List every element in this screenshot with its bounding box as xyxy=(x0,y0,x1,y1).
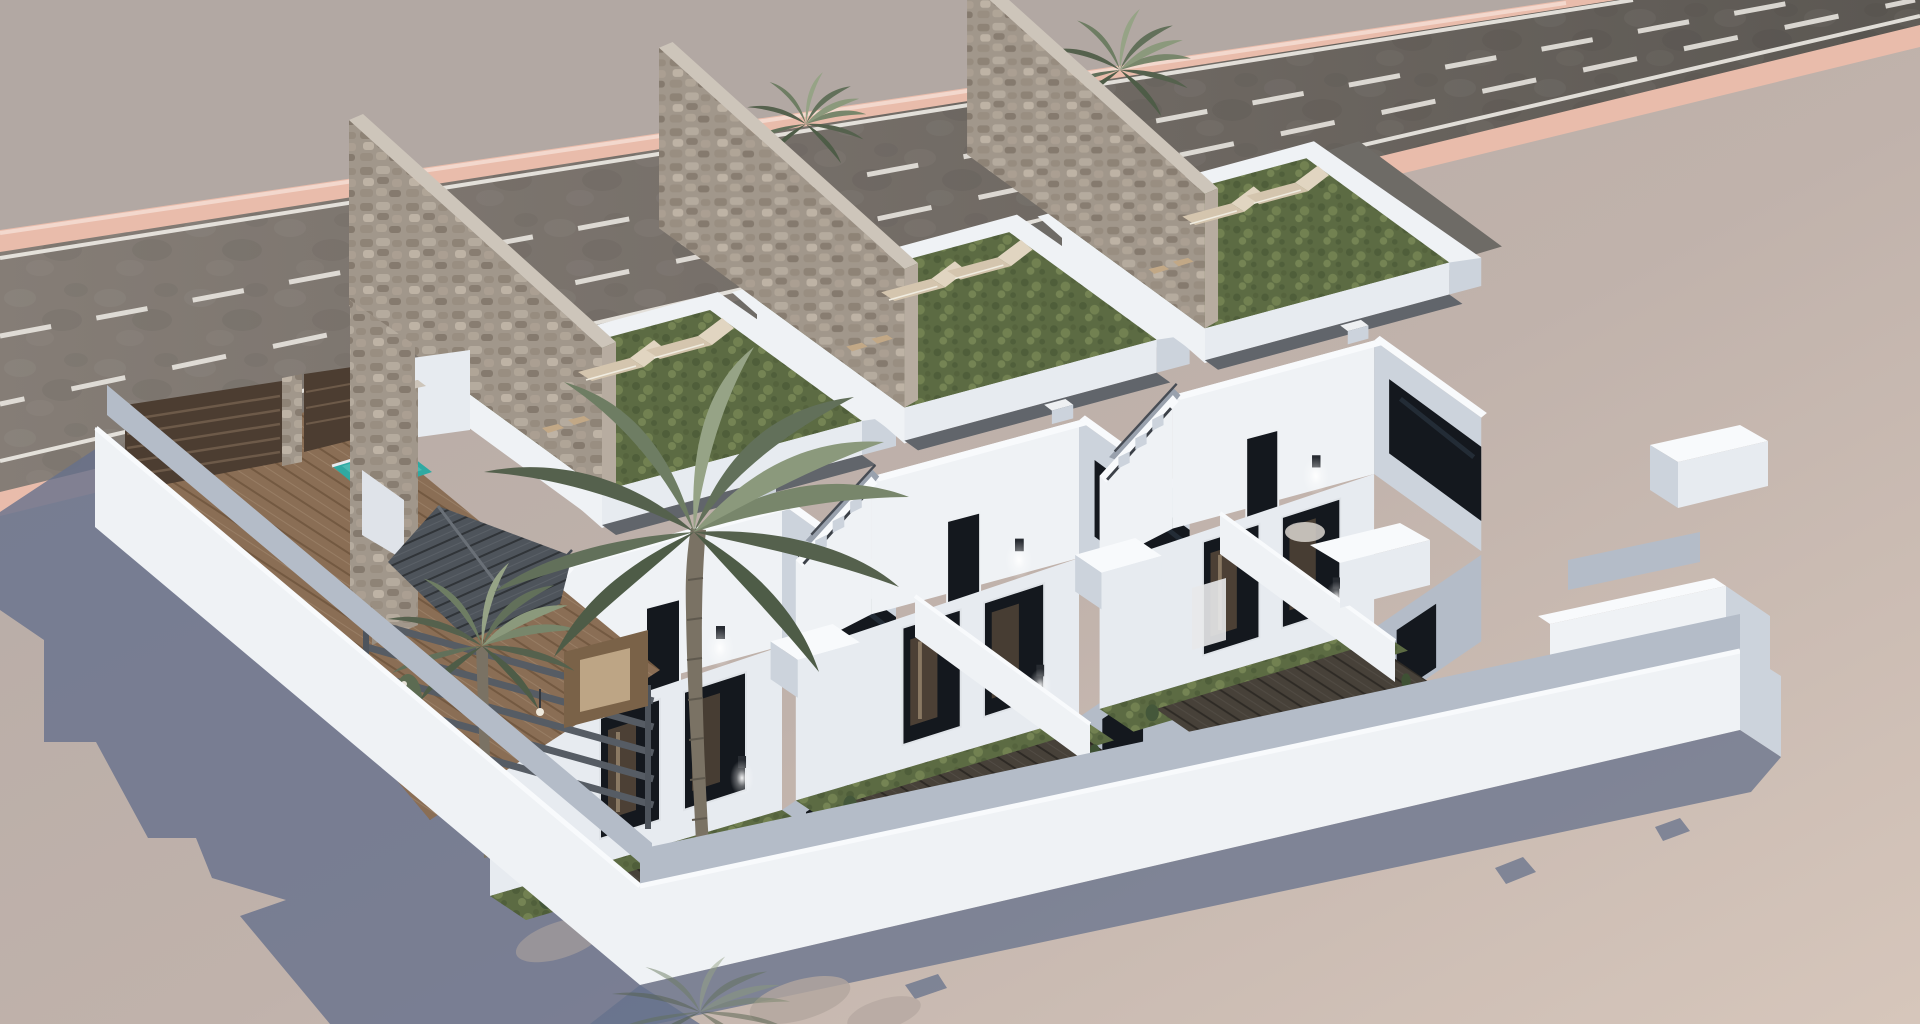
kitchen-cabinet-light xyxy=(580,648,630,712)
planter-box-face xyxy=(1678,441,1768,508)
front-wall-top-edge xyxy=(640,651,1740,886)
stone-wall-opening xyxy=(362,470,404,560)
pool-water xyxy=(332,446,432,494)
wood-deck-planks xyxy=(135,402,660,820)
villa-3-end-unit xyxy=(967,0,1502,782)
flowering-shrub xyxy=(394,674,450,790)
asphalt-road-texture xyxy=(0,0,1920,494)
lane-dashed-line xyxy=(0,0,1806,336)
gate-slat xyxy=(306,400,350,408)
gate-slat xyxy=(127,438,280,462)
tiled-canopy xyxy=(388,506,572,640)
villa-2-middle-unit xyxy=(659,42,1211,876)
palm-trunk xyxy=(476,646,494,858)
plant-shadow-bump xyxy=(1495,857,1536,884)
sunlight-gap-in-shadow xyxy=(843,989,924,1024)
pergola xyxy=(366,608,650,826)
perimeter-walls xyxy=(95,385,1781,985)
divider-wall-top xyxy=(915,596,1090,724)
canopy-slate-roof xyxy=(388,506,572,640)
near-pink-kerb xyxy=(0,25,1920,516)
sunlight-gap-in-shadow xyxy=(511,909,610,972)
background-palm xyxy=(747,72,866,163)
plant-shadow-bump xyxy=(1655,818,1690,841)
plant-shadow-bump xyxy=(905,974,947,999)
background-palm xyxy=(1051,9,1191,116)
pergola-beam xyxy=(370,622,650,700)
planter-box-face xyxy=(1340,540,1430,608)
plunge-pool xyxy=(332,446,432,494)
pergola-pendant-light xyxy=(536,708,544,716)
palm-shadow-silhouette xyxy=(612,957,791,1024)
parked-car xyxy=(700,224,770,256)
front-wall-end-cap xyxy=(1740,650,1781,757)
shrub-foliage xyxy=(426,746,450,790)
planter-box-top xyxy=(1650,425,1768,462)
courtyard-divider-wall xyxy=(1220,512,1395,682)
gate-leaf xyxy=(125,381,282,492)
canopy-ridge xyxy=(438,506,500,588)
end-planter-box xyxy=(1650,425,1768,508)
planter-box-side xyxy=(1650,445,1678,508)
end-wall-return xyxy=(1726,586,1770,694)
pergola-beam xyxy=(370,700,650,778)
villa-1-corner-unit xyxy=(349,114,918,974)
road-edge-line xyxy=(0,16,1920,461)
gate-slat xyxy=(306,384,350,392)
ground-beyond-road xyxy=(0,0,1566,230)
render-canvas xyxy=(0,0,1920,1024)
small-palm xyxy=(388,563,579,858)
planter-box-top xyxy=(1310,523,1430,563)
asphalt-road xyxy=(0,0,1920,494)
kitchen-appliance xyxy=(1192,578,1226,650)
corner-villa-extras xyxy=(125,300,909,865)
divider-wall-face xyxy=(915,595,1090,765)
end-wall-inner-face xyxy=(1568,532,1700,590)
pedestrian-gate xyxy=(304,367,352,452)
divider-planter-box xyxy=(1310,523,1430,608)
car-windshield xyxy=(714,231,752,247)
divider-wall-top xyxy=(1220,513,1395,641)
far-pink-kerb xyxy=(0,0,1618,254)
divider-wall-face xyxy=(1220,512,1395,682)
building-cast-shadow xyxy=(0,438,700,1024)
stone-column xyxy=(372,380,426,645)
stone-column-cap xyxy=(372,380,426,396)
pergola-beam xyxy=(370,648,650,726)
entry-side-wall xyxy=(354,350,470,446)
pool-water-light xyxy=(342,450,422,487)
courtyard-kitchen-view xyxy=(564,630,648,728)
road-edge-line xyxy=(0,0,1633,258)
gate-slat xyxy=(127,410,280,434)
gate-pillar-stone xyxy=(282,374,302,466)
lower-stone-wall xyxy=(350,300,415,620)
right-end-walls xyxy=(1538,532,1770,702)
car-body xyxy=(700,224,770,256)
end-wall-top xyxy=(1538,578,1726,624)
kitchen-doorway xyxy=(564,630,648,728)
pergola-beam xyxy=(370,726,650,804)
pool-coping xyxy=(332,446,398,466)
side-wall-outer-face xyxy=(95,427,640,985)
gate-slat xyxy=(127,424,280,448)
courtyard-divider-wall xyxy=(915,595,1090,765)
gate-slat xyxy=(306,416,350,424)
side-wall-top-edge xyxy=(96,428,640,886)
shrub-foliage xyxy=(394,674,422,726)
large-palm xyxy=(484,347,909,865)
shrub-bloom xyxy=(411,703,417,709)
shrub-bloom xyxy=(401,681,407,687)
palm-trunk-rings xyxy=(687,578,707,820)
stone-column-face xyxy=(372,380,418,645)
gate-slat xyxy=(127,452,280,476)
front-wall-shadow xyxy=(590,730,1781,1024)
front-wall-inner-face xyxy=(640,614,1740,885)
canopy-tile-texture xyxy=(388,506,572,640)
entrance-gate xyxy=(125,350,470,492)
ground-plane xyxy=(0,0,1920,1024)
end-wall-face xyxy=(1550,586,1726,702)
front-wall-outer-face xyxy=(640,650,1740,985)
far-kerb-highlight xyxy=(0,3,1566,233)
lane-dashed-line xyxy=(0,0,1915,404)
pergola-beam xyxy=(370,674,650,752)
sunlight-gap-in-shadow xyxy=(745,966,856,1024)
bed-duvet xyxy=(1285,522,1325,542)
wood-deck-drive xyxy=(135,402,660,820)
gate-slat xyxy=(127,396,280,420)
side-wall-inner-face xyxy=(107,385,652,873)
palm-trunk xyxy=(686,528,710,865)
shrub-bloom xyxy=(433,749,439,755)
